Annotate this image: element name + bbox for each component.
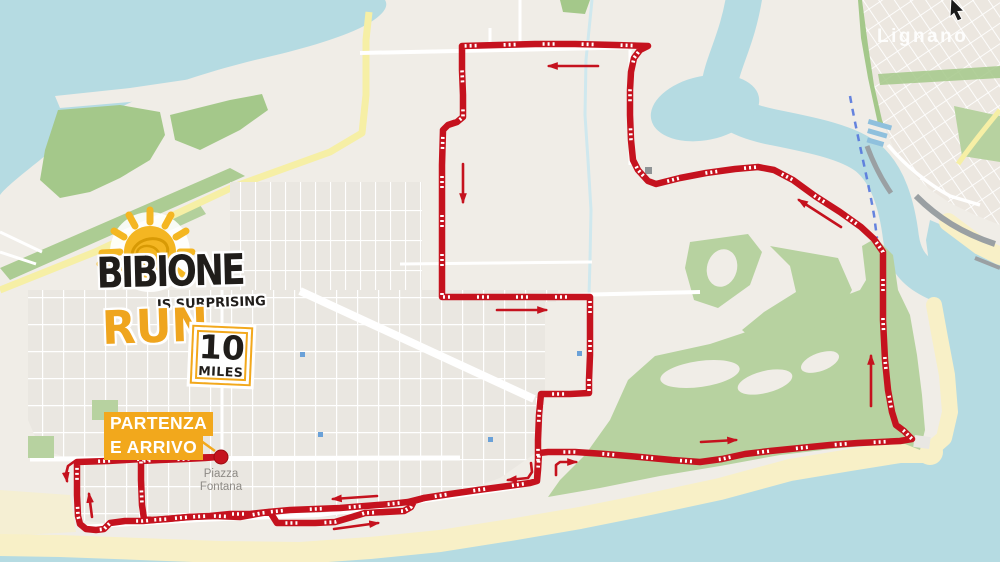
piazza-fontana-label-2: Fontana	[200, 481, 243, 493]
map-canvas[interactable]: Piazza Fontana Lignano	[0, 0, 1000, 562]
green-top-center	[560, 0, 590, 14]
lignano-label: Lignano	[877, 26, 968, 47]
piazza-fontana-label: Piazza	[204, 468, 239, 480]
race-map-screenshot: Piazza Fontana Lignano BIBIONE IS SURPRI…	[0, 0, 1000, 562]
start-finish-marker	[214, 450, 228, 464]
